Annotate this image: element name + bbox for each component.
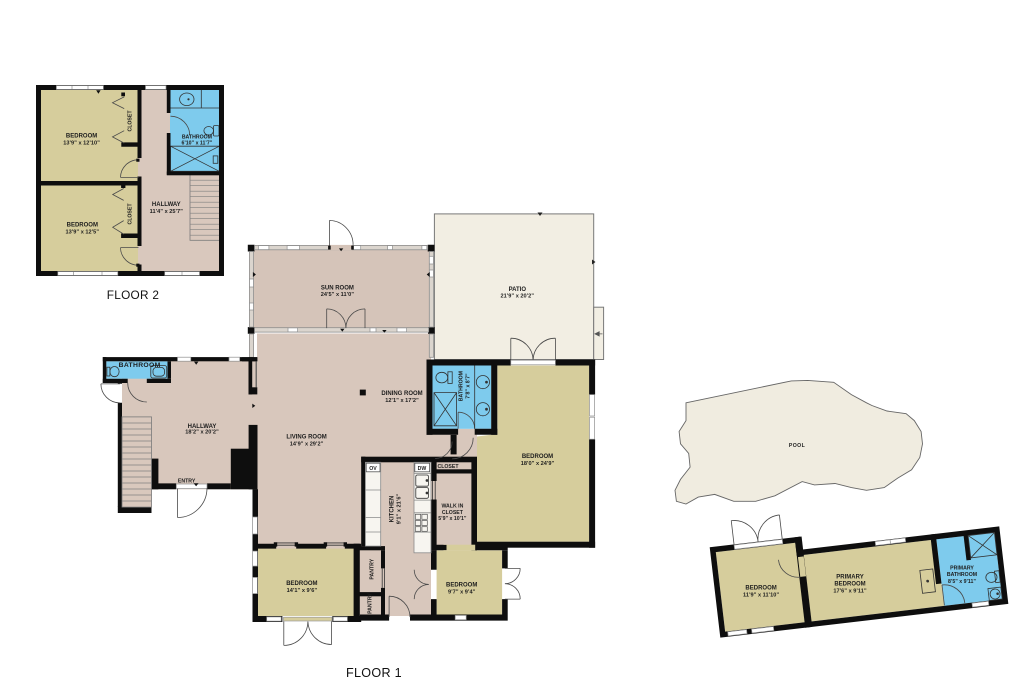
svg-text:FLOOR 1: FLOOR 1 <box>346 666 402 680</box>
svg-text:CLOSET: CLOSET <box>437 464 459 470</box>
svg-text:24’5” x 11’0”: 24’5” x 11’0” <box>321 292 354 298</box>
svg-text:17’6” x 9’11”: 17’6” x 9’11” <box>833 588 866 594</box>
svg-text:BEDROOM: BEDROOM <box>745 586 776 592</box>
svg-text:11’9” x 11’10”: 11’9” x 11’10” <box>743 592 779 598</box>
svg-text:14’9” x 29’2”: 14’9” x 29’2” <box>290 442 324 448</box>
svg-text:7’8” x 8’7”: 7’8” x 8’7” <box>465 373 471 399</box>
svg-text:BEDROOM: BEDROOM <box>66 133 97 139</box>
svg-text:PANTRY: PANTRY <box>368 593 374 614</box>
svg-text:BATHROOM: BATHROOM <box>119 362 161 369</box>
svg-text:OV: OV <box>369 466 377 472</box>
svg-text:ENTRY: ENTRY <box>178 478 196 484</box>
svg-text:KITCHEN: KITCHEN <box>389 496 395 523</box>
svg-text:13’9” x 12’10”: 13’9” x 12’10” <box>63 140 100 146</box>
svg-text:FLOOR 2: FLOOR 2 <box>107 288 160 302</box>
svg-text:PATIO: PATIO <box>509 287 527 293</box>
svg-text:PANTRY: PANTRY <box>370 558 376 579</box>
svg-text:CLOSET: CLOSET <box>128 110 134 132</box>
svg-text:PRIMARY: PRIMARY <box>836 574 863 580</box>
svg-text:21’9” x 20’2”: 21’9” x 20’2” <box>501 294 535 300</box>
svg-text:LIVING ROOM: LIVING ROOM <box>286 435 326 441</box>
svg-text:6’10” x 11’7”: 6’10” x 11’7” <box>181 140 212 146</box>
svg-text:BEDROOM: BEDROOM <box>834 581 865 587</box>
svg-text:12’1” x 17’2”: 12’1” x 17’2” <box>385 398 419 404</box>
svg-text:18’2” x 20’2”: 18’2” x 20’2” <box>185 430 219 436</box>
svg-text:BEDROOM: BEDROOM <box>286 581 317 587</box>
svg-text:5’9” x 10’1”: 5’9” x 10’1” <box>438 516 467 522</box>
svg-text:BATHROOM: BATHROOM <box>947 572 977 578</box>
svg-text:CLOSET: CLOSET <box>442 510 464 516</box>
svg-text:BEDROOM: BEDROOM <box>522 454 553 460</box>
svg-text:CLOSET: CLOSET <box>127 203 133 225</box>
svg-text:13’9” x 12’5”: 13’9” x 12’5” <box>66 229 100 235</box>
svg-text:BATHROOM: BATHROOM <box>458 371 464 401</box>
svg-text:DINING ROOM: DINING ROOM <box>381 391 422 397</box>
svg-text:WALK IN: WALK IN <box>441 504 463 510</box>
svg-text:HALLWAY: HALLWAY <box>152 202 181 208</box>
svg-text:9’1” x 21’6”: 9’1” x 21’6” <box>396 494 402 525</box>
svg-text:11’4” x 25’7”: 11’4” x 25’7” <box>150 209 183 215</box>
svg-text:PRIMARY: PRIMARY <box>950 566 974 572</box>
svg-text:9’7” x 9’4”: 9’7” x 9’4” <box>448 590 476 596</box>
svg-text:18’0” x 24’9”: 18’0” x 24’9” <box>521 461 555 467</box>
svg-text:BEDROOM: BEDROOM <box>446 582 477 588</box>
svg-text:SUN ROOM: SUN ROOM <box>321 285 354 291</box>
svg-text:BEDROOM: BEDROOM <box>67 222 98 228</box>
svg-text:14’1” x 9’6”: 14’1” x 9’6” <box>287 588 318 594</box>
svg-text:8’5” x 9’11”: 8’5” x 9’11” <box>948 579 976 585</box>
svg-text:DW: DW <box>418 466 427 472</box>
svg-text:POOL: POOL <box>789 443 806 449</box>
